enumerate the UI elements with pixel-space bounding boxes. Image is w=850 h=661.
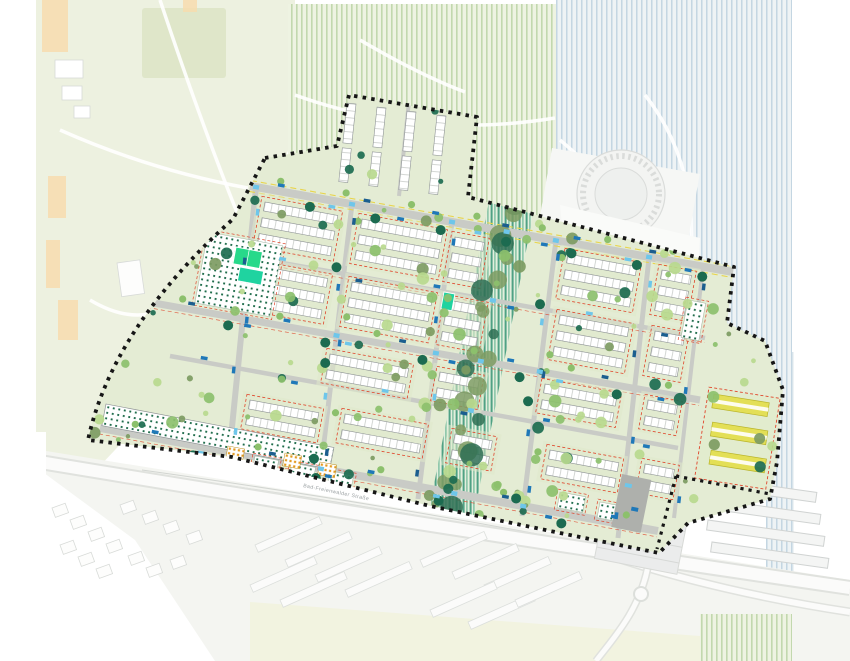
tree [187,375,193,381]
tree [309,260,319,270]
street-tree [566,248,576,258]
tree [334,219,344,229]
tree [587,291,598,302]
street-tree [132,421,139,428]
context-building [117,260,145,297]
orange-plot-rect [283,453,302,469]
tree [354,413,362,421]
tree [386,342,391,347]
corridor-tree [488,329,498,339]
tree [344,469,354,479]
context-building-orange [48,176,66,218]
tree [559,491,568,500]
tree [683,299,693,309]
tree [381,319,392,330]
tree [661,308,673,320]
junction-circle [634,587,648,601]
tree [619,287,630,298]
tree [370,456,375,461]
street-tree [612,389,622,399]
tree [288,360,293,365]
street-tree [632,260,642,270]
tree [499,250,511,262]
tree [369,245,380,256]
tree [150,310,155,315]
tree [754,433,765,444]
tree [139,421,146,428]
tree [560,453,572,465]
tree [449,476,457,484]
context-building-orange [183,0,197,12]
tree [669,262,681,274]
orange-plot [283,453,302,469]
corridor-tree [468,377,487,396]
street-tree [523,396,533,406]
tree [367,169,377,179]
street-tree [534,448,541,455]
tree [285,292,295,302]
context-building-orange [42,0,68,52]
tree [546,485,558,497]
tree [116,437,121,442]
street-tree [309,454,319,464]
tree [514,307,519,312]
tree [204,393,215,404]
tree [513,260,526,273]
tree [596,458,602,464]
tree [461,365,470,374]
tree [564,513,569,518]
tree [532,422,544,434]
context-field-stripes-br [700,614,792,661]
parked-car [256,209,260,216]
tree [438,179,443,184]
tree [422,403,432,413]
tree [536,293,540,297]
tree [355,341,364,350]
tree [250,196,259,205]
tree [709,439,720,450]
street-tree [604,236,611,243]
tree [239,289,245,295]
tree [383,363,393,373]
tree [318,221,327,230]
tree [522,235,531,244]
parked-car [245,317,249,324]
street-tree [568,364,575,371]
context-building [62,86,82,100]
street-tree [471,347,478,354]
street-tree [623,511,630,518]
masterplan-svg: Bad-Freienwalder Straße [0,0,850,661]
street-tree [343,313,350,320]
street-tree [223,320,233,330]
tree [635,449,645,459]
tree [375,406,382,413]
masterplan-map: Bad-Freienwalder Straße [0,0,850,661]
street-tree [343,189,350,196]
margin-right [795,0,850,366]
tree [427,292,438,303]
tree [466,461,472,467]
tree [614,296,621,303]
tree [209,258,221,270]
tree [194,264,199,269]
street-tree [515,372,525,382]
tree [595,417,607,429]
tree [426,327,435,336]
tree [665,272,671,278]
tree [153,378,161,386]
corridor-tree [471,279,493,301]
tree [312,418,319,425]
parked-car [234,428,238,435]
tree [421,215,432,226]
tree [221,248,233,260]
street-tree [408,201,415,208]
tree [556,415,565,424]
tree [166,416,178,428]
street-tree [373,330,380,337]
tree [605,342,614,351]
street-tree [254,443,261,450]
tree [751,358,756,363]
tree [357,151,365,159]
tree [713,342,718,347]
tree [126,434,130,438]
tree [491,481,501,491]
context-building [55,60,83,78]
corridor-tree [455,424,466,435]
tree [179,416,186,423]
street-tree [511,493,521,503]
tree [447,398,459,410]
context-building-orange [46,240,60,288]
tree [319,442,327,450]
corridor-tree [472,413,485,426]
tree [740,378,749,387]
tree [345,165,354,174]
tree [248,240,255,247]
tree [494,280,500,286]
tree [549,395,562,408]
tree [391,373,400,382]
tree [755,461,766,472]
context-building [74,106,90,118]
tree [409,416,416,423]
tree [576,325,582,331]
tree [441,270,448,277]
tree [466,399,477,410]
street-tree [370,213,380,223]
tree [381,244,387,250]
street-tree [665,382,672,389]
street-tree [436,225,446,235]
street-tree [473,213,480,220]
tree [337,295,346,304]
tree [351,242,356,247]
street-tree [417,355,427,365]
tree [270,410,282,422]
parked-car [243,258,247,265]
street-tree [320,358,330,368]
tree [631,324,636,329]
tree [191,260,196,265]
street-tree [546,351,553,358]
street-tree [332,262,342,272]
tree [121,359,129,367]
tree [505,317,510,322]
tree [674,393,687,406]
tree [417,272,429,284]
tree [707,391,719,403]
tree [398,282,406,290]
tree [399,360,409,370]
street-tree [556,518,566,528]
tree [683,479,688,484]
tree [243,333,248,338]
parked-car [232,366,236,373]
street-tree [535,299,545,309]
tree [531,455,540,464]
corridor-tree [480,351,496,367]
street-tree [539,224,546,231]
tree [767,441,777,451]
street-tree [377,466,384,473]
street-tree [697,272,707,282]
tree [230,306,240,316]
tree [278,376,285,383]
tree [382,208,387,213]
street-tree [501,237,511,247]
tree [649,378,661,390]
street-tree [305,202,315,212]
tree [440,308,449,317]
tree [199,392,205,398]
street-tree [276,313,283,320]
east-parcel [695,387,781,489]
tree [726,332,731,337]
gasometer-inner [595,168,647,220]
tree [453,328,466,341]
tree [203,411,208,416]
tree [707,303,718,314]
tree [689,494,698,503]
street-tree [320,338,330,348]
tree [599,389,609,399]
corridor-tree [477,305,490,318]
tree [444,294,452,302]
tree [428,370,437,379]
tree [245,414,250,419]
street-tree [179,295,186,302]
tree [277,210,286,219]
tree [575,416,582,423]
tree [94,414,104,424]
tree [646,290,658,302]
street-tree [332,409,339,416]
tree [479,462,488,471]
context-building-orange [58,300,78,340]
